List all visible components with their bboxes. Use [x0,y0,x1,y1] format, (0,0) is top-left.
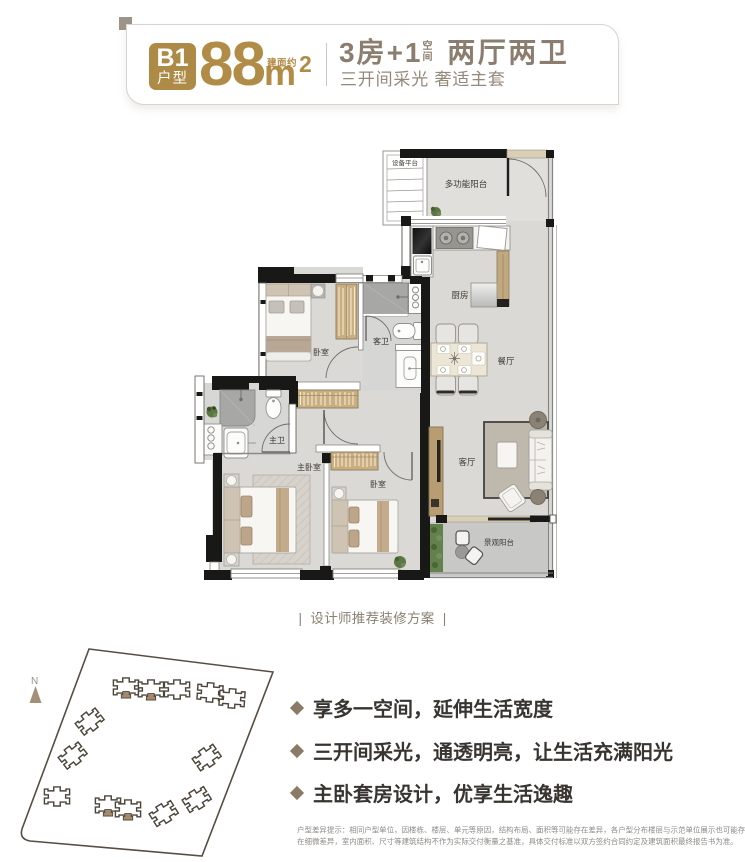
svg-text:客厅: 客厅 [458,457,476,467]
svg-text:餐厅: 餐厅 [497,356,515,366]
svg-text:设备平台: 设备平台 [392,158,418,167]
svg-text:卧室: 卧室 [313,347,329,357]
svg-text:主卧室: 主卧室 [297,462,321,472]
svg-text:N: N [31,676,38,687]
svg-text:卧室: 卧室 [370,479,386,489]
svg-text:景观阳台: 景观阳台 [484,537,514,547]
svg-text:多功能阳台: 多功能阳台 [445,179,488,189]
svg-text:客卫: 客卫 [373,336,389,346]
svg-text:主卫: 主卫 [269,435,285,445]
svg-text:厨房: 厨房 [451,290,468,300]
